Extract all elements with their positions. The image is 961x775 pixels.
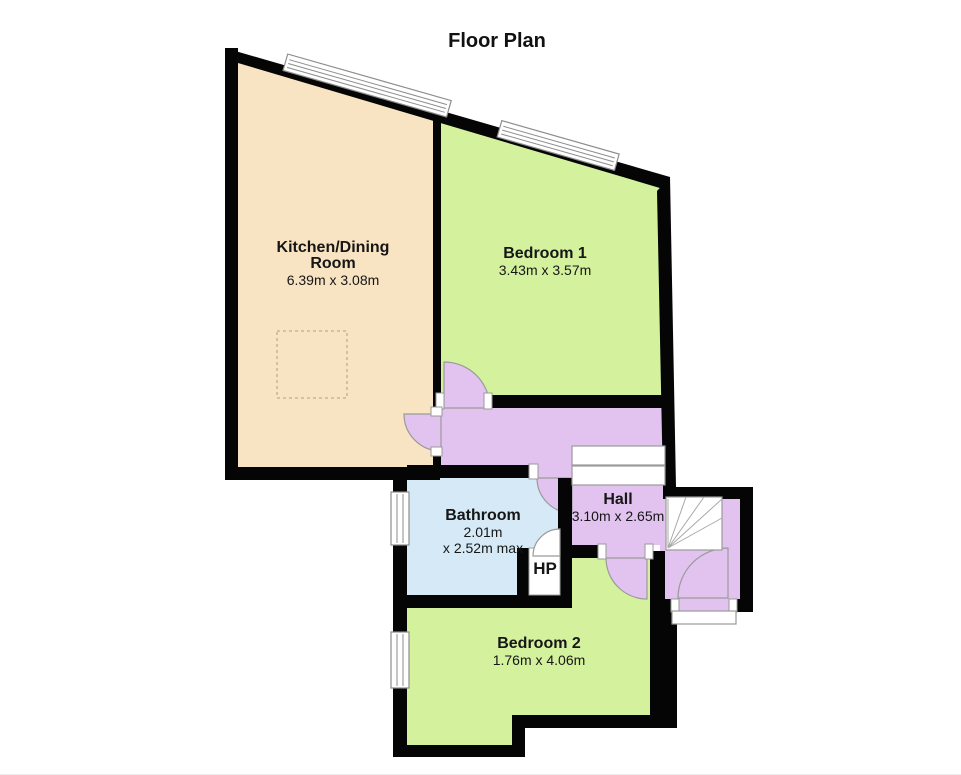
kitchen-name: Kitchen/Dining (277, 240, 390, 256)
winder-staircase (666, 497, 722, 550)
door-jamb (729, 599, 737, 612)
hall-name: Hall (572, 492, 665, 508)
bathroom-label: Bathroom 2.01m x 2.52m max (443, 508, 523, 556)
bathroom-name: Bathroom (443, 508, 523, 524)
kitchen-name-line2: Room (277, 256, 390, 272)
bathroom-dimensions: 2.01m (443, 524, 523, 540)
bedroom1-label: Bedroom 1 3.43m x 3.57m (499, 246, 592, 278)
door-jamb (598, 544, 606, 559)
stair-landing-step (572, 446, 665, 465)
floor-plan: Floor Plan Kitchen/Dining Room 6.39m x 3… (0, 0, 961, 775)
bedroom2-door-opening (606, 545, 647, 558)
bathroom-window (391, 492, 409, 545)
hall-dimensions: 3.10m x 2.65m (572, 508, 665, 524)
door-jamb (484, 393, 492, 409)
stair-landing-step (572, 466, 665, 485)
door-jamb (529, 464, 538, 479)
floor-plan-drawing (0, 0, 961, 774)
entrance-threshold (672, 611, 736, 624)
door-jamb (671, 599, 679, 612)
bathroom-door-opening (537, 465, 572, 479)
kitchen-dimensions: 6.39m x 3.08m (277, 272, 390, 288)
door-jamb (645, 544, 653, 559)
page-title: Floor Plan (448, 30, 546, 53)
bedroom2-dimensions: 1.76m x 4.06m (493, 652, 586, 668)
bedroom1-dimensions: 3.43m x 3.57m (499, 262, 592, 278)
bedroom2-label: Bedroom 2 1.76m x 4.06m (493, 636, 586, 668)
bedroom2-name: Bedroom 2 (493, 636, 586, 652)
door-jamb (431, 407, 442, 416)
hot-press-label: HP (533, 559, 557, 579)
bathroom-dimensions-line2: x 2.52m max (443, 540, 523, 556)
hall-label: Hall 3.10m x 2.65m (572, 492, 665, 524)
bedroom2-window (391, 632, 409, 688)
bedroom1-name: Bedroom 1 (499, 246, 592, 262)
door-jamb (431, 447, 442, 456)
kitchen-label: Kitchen/Dining Room 6.39m x 3.08m (277, 240, 390, 288)
